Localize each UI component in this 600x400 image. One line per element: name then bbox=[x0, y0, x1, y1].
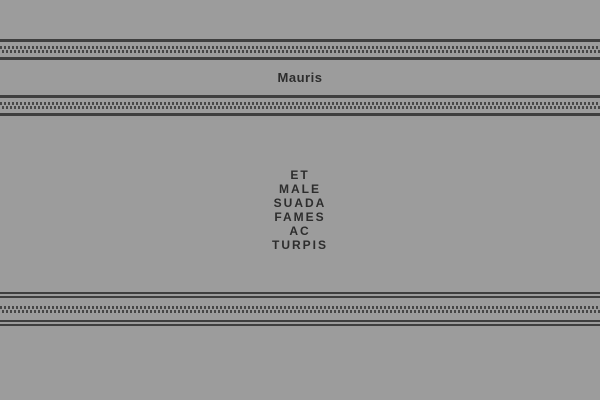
decorative-rule-top bbox=[0, 39, 600, 60]
word-nav: ET MALE SUADA FAMES AC TURPIS bbox=[0, 168, 600, 252]
dotted-line bbox=[0, 46, 600, 49]
decorative-rule-footer bbox=[0, 292, 600, 326]
nav-item-fames[interactable]: FAMES bbox=[274, 210, 325, 224]
nav-item-et[interactable]: ET bbox=[290, 168, 309, 182]
header: Mauris bbox=[0, 60, 600, 95]
nav-item-ac[interactable]: AC bbox=[289, 224, 310, 238]
nav-item-suada[interactable]: SUADA bbox=[274, 196, 327, 210]
page: Mauris ET MALE SUADA FAMES AC TURPIS bbox=[0, 0, 600, 400]
dotted-line bbox=[0, 50, 600, 53]
nav-item-male[interactable]: MALE bbox=[279, 182, 321, 196]
dotted-line bbox=[0, 106, 600, 109]
decorative-rule-header-bottom bbox=[0, 95, 600, 116]
dotted-line bbox=[0, 310, 600, 313]
dotted-line bbox=[0, 102, 600, 105]
dotted-line bbox=[0, 306, 600, 309]
nav-item-turpis[interactable]: TURPIS bbox=[272, 238, 328, 252]
page-title: Mauris bbox=[278, 70, 323, 85]
